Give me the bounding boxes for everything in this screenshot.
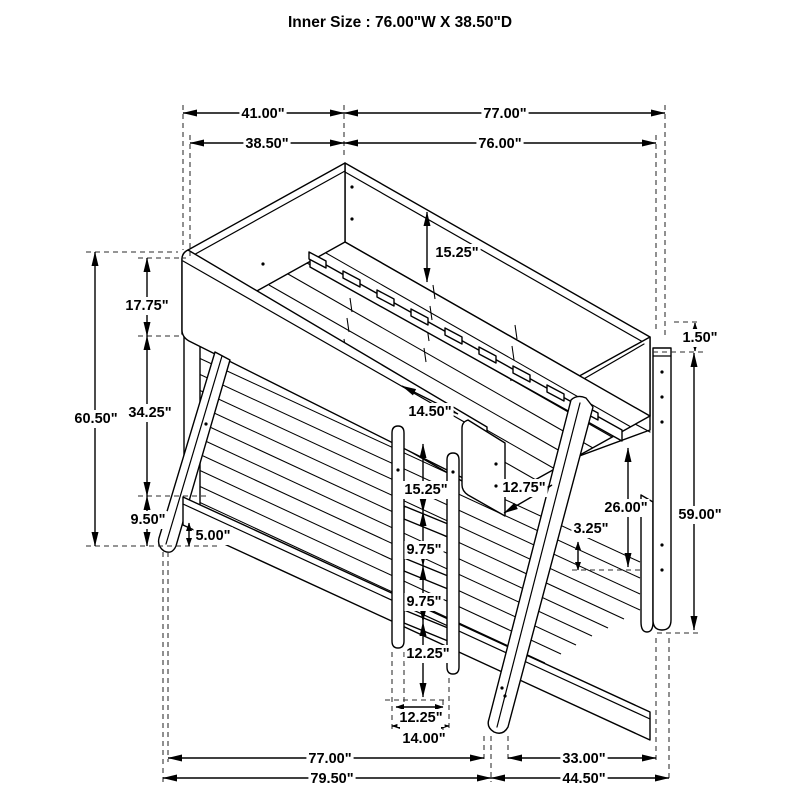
bunk-bed-dimension-diagram: Inner Size : 76.00"W X 38.50"D 41.00" 77… bbox=[0, 0, 800, 800]
ladder-left-rail bbox=[392, 426, 404, 648]
diagram-canvas: Inner Size : 76.00"W X 38.50"D 41.00" 77… bbox=[0, 0, 800, 800]
dim-top-depth-inner: 38.50" bbox=[245, 136, 288, 152]
dim-ladder-top-spacing: 15.25" bbox=[404, 482, 447, 498]
dim-top-width-overall: 77.00" bbox=[483, 106, 526, 122]
dim-left-upper: 17.75" bbox=[125, 298, 168, 314]
dim-floor-clearance: 5.00" bbox=[195, 528, 230, 544]
dim-ladder-outer-width: 14.00" bbox=[402, 731, 445, 747]
dim-rung-spacing-lower: 9.75" bbox=[406, 594, 441, 610]
dim-overall-height-right: 59.00" bbox=[678, 507, 721, 523]
dim-bottom-right-depth: 33.00" bbox=[562, 751, 605, 767]
dim-upper-rail-height: 15.25" bbox=[435, 245, 478, 261]
dim-rail-panel-gap: 14.50" bbox=[408, 404, 451, 420]
dim-bunk-clearance: 26.00" bbox=[604, 500, 647, 516]
dim-top-depth-overall: 41.00" bbox=[241, 106, 284, 122]
dim-bottom-depth-overall: 44.50" bbox=[562, 771, 605, 787]
rear-right-post bbox=[653, 348, 671, 630]
dim-rail-top-offset: 1.50" bbox=[682, 330, 717, 346]
dim-top-width-inner: 76.00" bbox=[478, 136, 521, 152]
dim-panel-leg-gap: 12.75" bbox=[502, 480, 545, 496]
dim-bottom-width-overall: 79.50" bbox=[310, 771, 353, 787]
dim-rung-spacing-upper: 9.75" bbox=[406, 542, 441, 558]
dim-ladder-inner-width: 12.25" bbox=[399, 710, 442, 726]
dim-ladder-bottom: 12.25" bbox=[406, 646, 449, 662]
dim-bottom-width: 77.00" bbox=[308, 751, 351, 767]
dim-left-middle: 34.25" bbox=[128, 405, 171, 421]
dim-deck-thickness: 3.25" bbox=[573, 521, 608, 537]
dim-left-lower: 9.50" bbox=[130, 512, 165, 528]
dim-overall-height-left: 60.50" bbox=[74, 411, 117, 427]
diagram-title: Inner Size : 76.00"W X 38.50"D bbox=[288, 14, 512, 31]
